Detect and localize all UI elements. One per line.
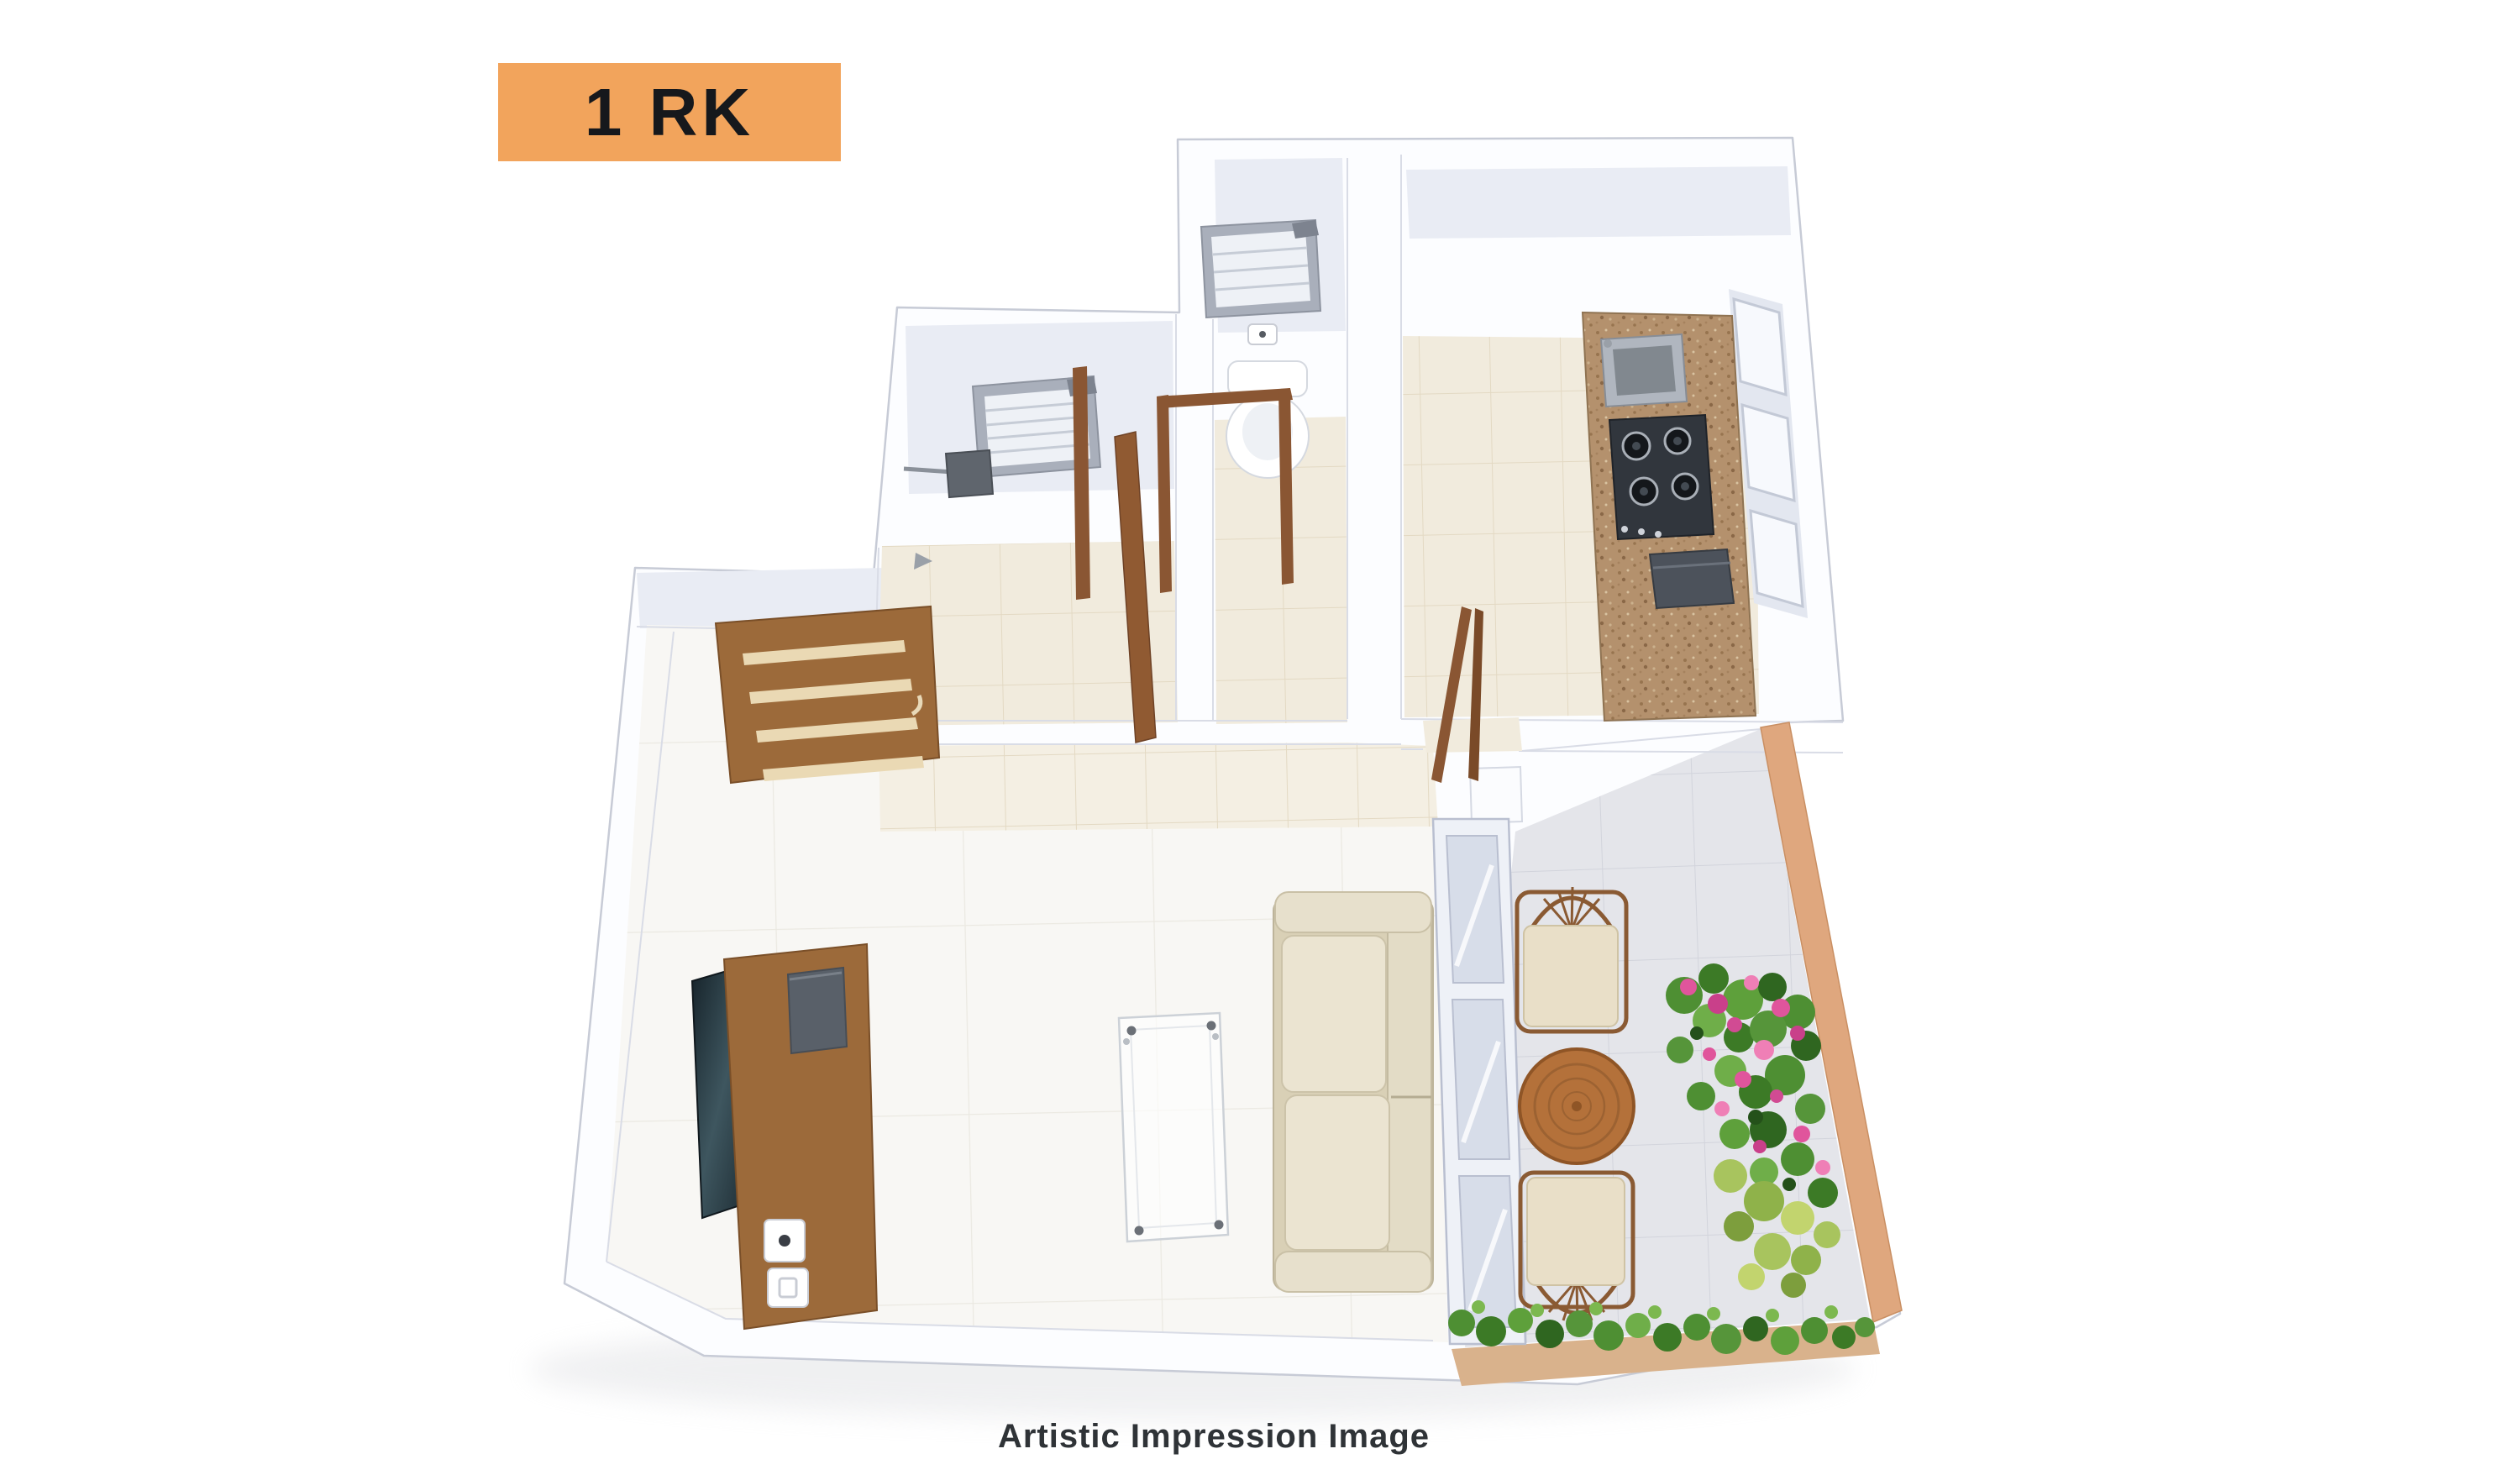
passage-floor [877, 743, 1438, 832]
sofa-seat-cushion [1285, 1095, 1389, 1250]
sofa-backrest [1388, 905, 1431, 1285]
tv-console [724, 944, 877, 1329]
gas-hob [1609, 415, 1714, 539]
sofa [1273, 892, 1433, 1292]
counter-appliance [1650, 549, 1734, 608]
sliding-glass-door [1433, 819, 1525, 1344]
flush-button [1248, 324, 1277, 344]
sofa-seat-cushion [1282, 936, 1386, 1092]
settop-device [788, 968, 847, 1053]
floor-plan-illustration [0, 0, 2520, 1475]
toilet-wc [1226, 361, 1309, 478]
floor-plan-page: 1 RK [0, 0, 2520, 1475]
sofa-armrest [1275, 892, 1431, 932]
balcony-round-table [1520, 1049, 1634, 1163]
glass-center-table [1119, 1013, 1228, 1241]
sofa-armrest [1275, 1252, 1431, 1292]
wardrobe [716, 606, 939, 783]
kitchen-sink [1601, 334, 1687, 407]
console-item [768, 1268, 808, 1307]
caption-text: Artistic Impression Image [962, 1418, 1466, 1456]
toilet-window [1201, 220, 1320, 318]
